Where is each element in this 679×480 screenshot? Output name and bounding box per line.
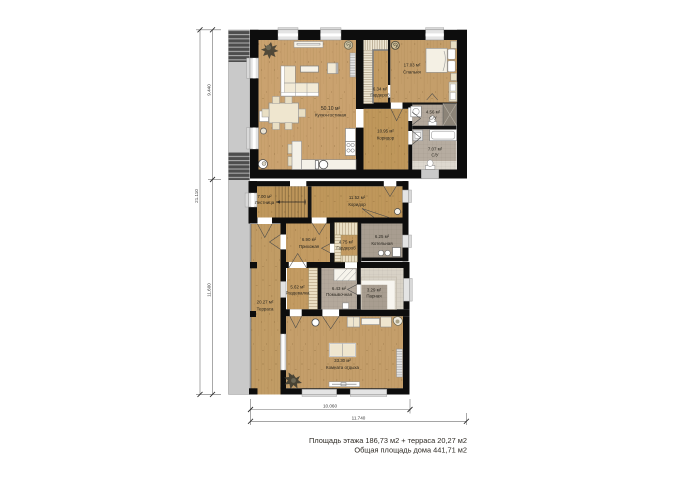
svg-text:17.03 м²: 17.03 м² [404, 63, 421, 68]
svg-text:4.75 м²: 4.75 м² [339, 240, 354, 245]
svg-text:7.00 м²: 7.00 м² [257, 194, 272, 199]
svg-text:11.740: 11.740 [352, 415, 366, 420]
svg-text:С/У: С/У [429, 116, 436, 121]
svg-text:Гардероб: Гардероб [370, 93, 390, 98]
svg-text:Площадь этажа 186,73 м2 + терр: Площадь этажа 186,73 м2 + терраса 20,27 … [309, 436, 467, 445]
svg-text:Гардероб: Гардероб [336, 246, 356, 251]
svg-text:10.95 м²: 10.95 м² [377, 129, 394, 134]
svg-text:4.56 м²: 4.56 м² [426, 110, 441, 115]
svg-text:11.600: 11.600 [207, 283, 212, 297]
svg-text:Общая площадь дома 441,71 м2: Общая площадь дома 441,71 м2 [354, 446, 467, 455]
svg-text:Терраса: Терраса [257, 307, 274, 312]
svg-text:Парная: Парная [366, 294, 382, 299]
svg-text:С/У: С/У [431, 153, 438, 158]
svg-text:6.43 м²: 6.43 м² [332, 286, 347, 291]
svg-text:21.110: 21.110 [194, 189, 199, 203]
svg-text:5.62 м²: 5.62 м² [290, 285, 305, 290]
svg-text:Коридор: Коридор [348, 202, 366, 207]
svg-text:Помывочная: Помывочная [326, 292, 353, 297]
svg-text:Кухня-гостиная: Кухня-гостиная [315, 113, 347, 118]
svg-text:Коридор: Коридор [377, 136, 395, 141]
svg-text:Комната отдыха: Комната отдыха [326, 365, 359, 370]
svg-text:33.30 м²: 33.30 м² [334, 358, 351, 363]
svg-text:Котельная: Котельная [371, 241, 393, 246]
svg-text:Спальня: Спальня [403, 70, 421, 75]
svg-text:10.060: 10.060 [323, 404, 337, 409]
svg-text:Прихожая: Прихожая [299, 244, 320, 249]
svg-text:11.52 м²: 11.52 м² [349, 195, 366, 200]
svg-text:6.34 м²: 6.34 м² [373, 87, 388, 92]
svg-text:6.25 м²: 6.25 м² [375, 234, 390, 239]
svg-text:Лестница: Лестница [255, 200, 275, 205]
svg-text:9.440: 9.440 [207, 84, 212, 96]
svg-text:50.10 м²: 50.10 м² [321, 106, 341, 112]
svg-text:Раздевалка: Раздевалка [286, 291, 310, 296]
svg-text:7.07 м²: 7.07 м² [428, 147, 443, 152]
svg-text:20.27 м²: 20.27 м² [257, 300, 274, 305]
svg-text:6.90 м²: 6.90 м² [302, 237, 317, 242]
svg-text:3.29 м²: 3.29 м² [367, 288, 382, 293]
